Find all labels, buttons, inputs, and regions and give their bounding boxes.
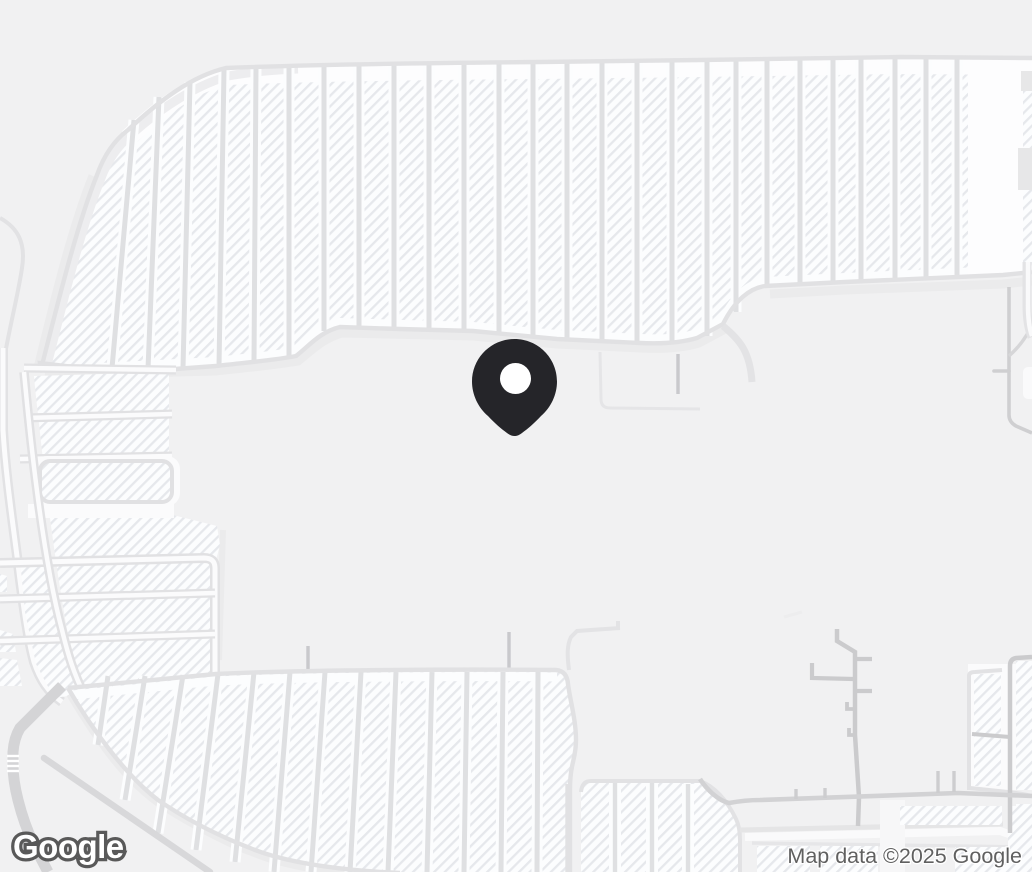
svg-text:Google: Google bbox=[13, 828, 124, 865]
svg-text:Map data ©2025 Google: Map data ©2025 Google bbox=[787, 844, 1022, 868]
